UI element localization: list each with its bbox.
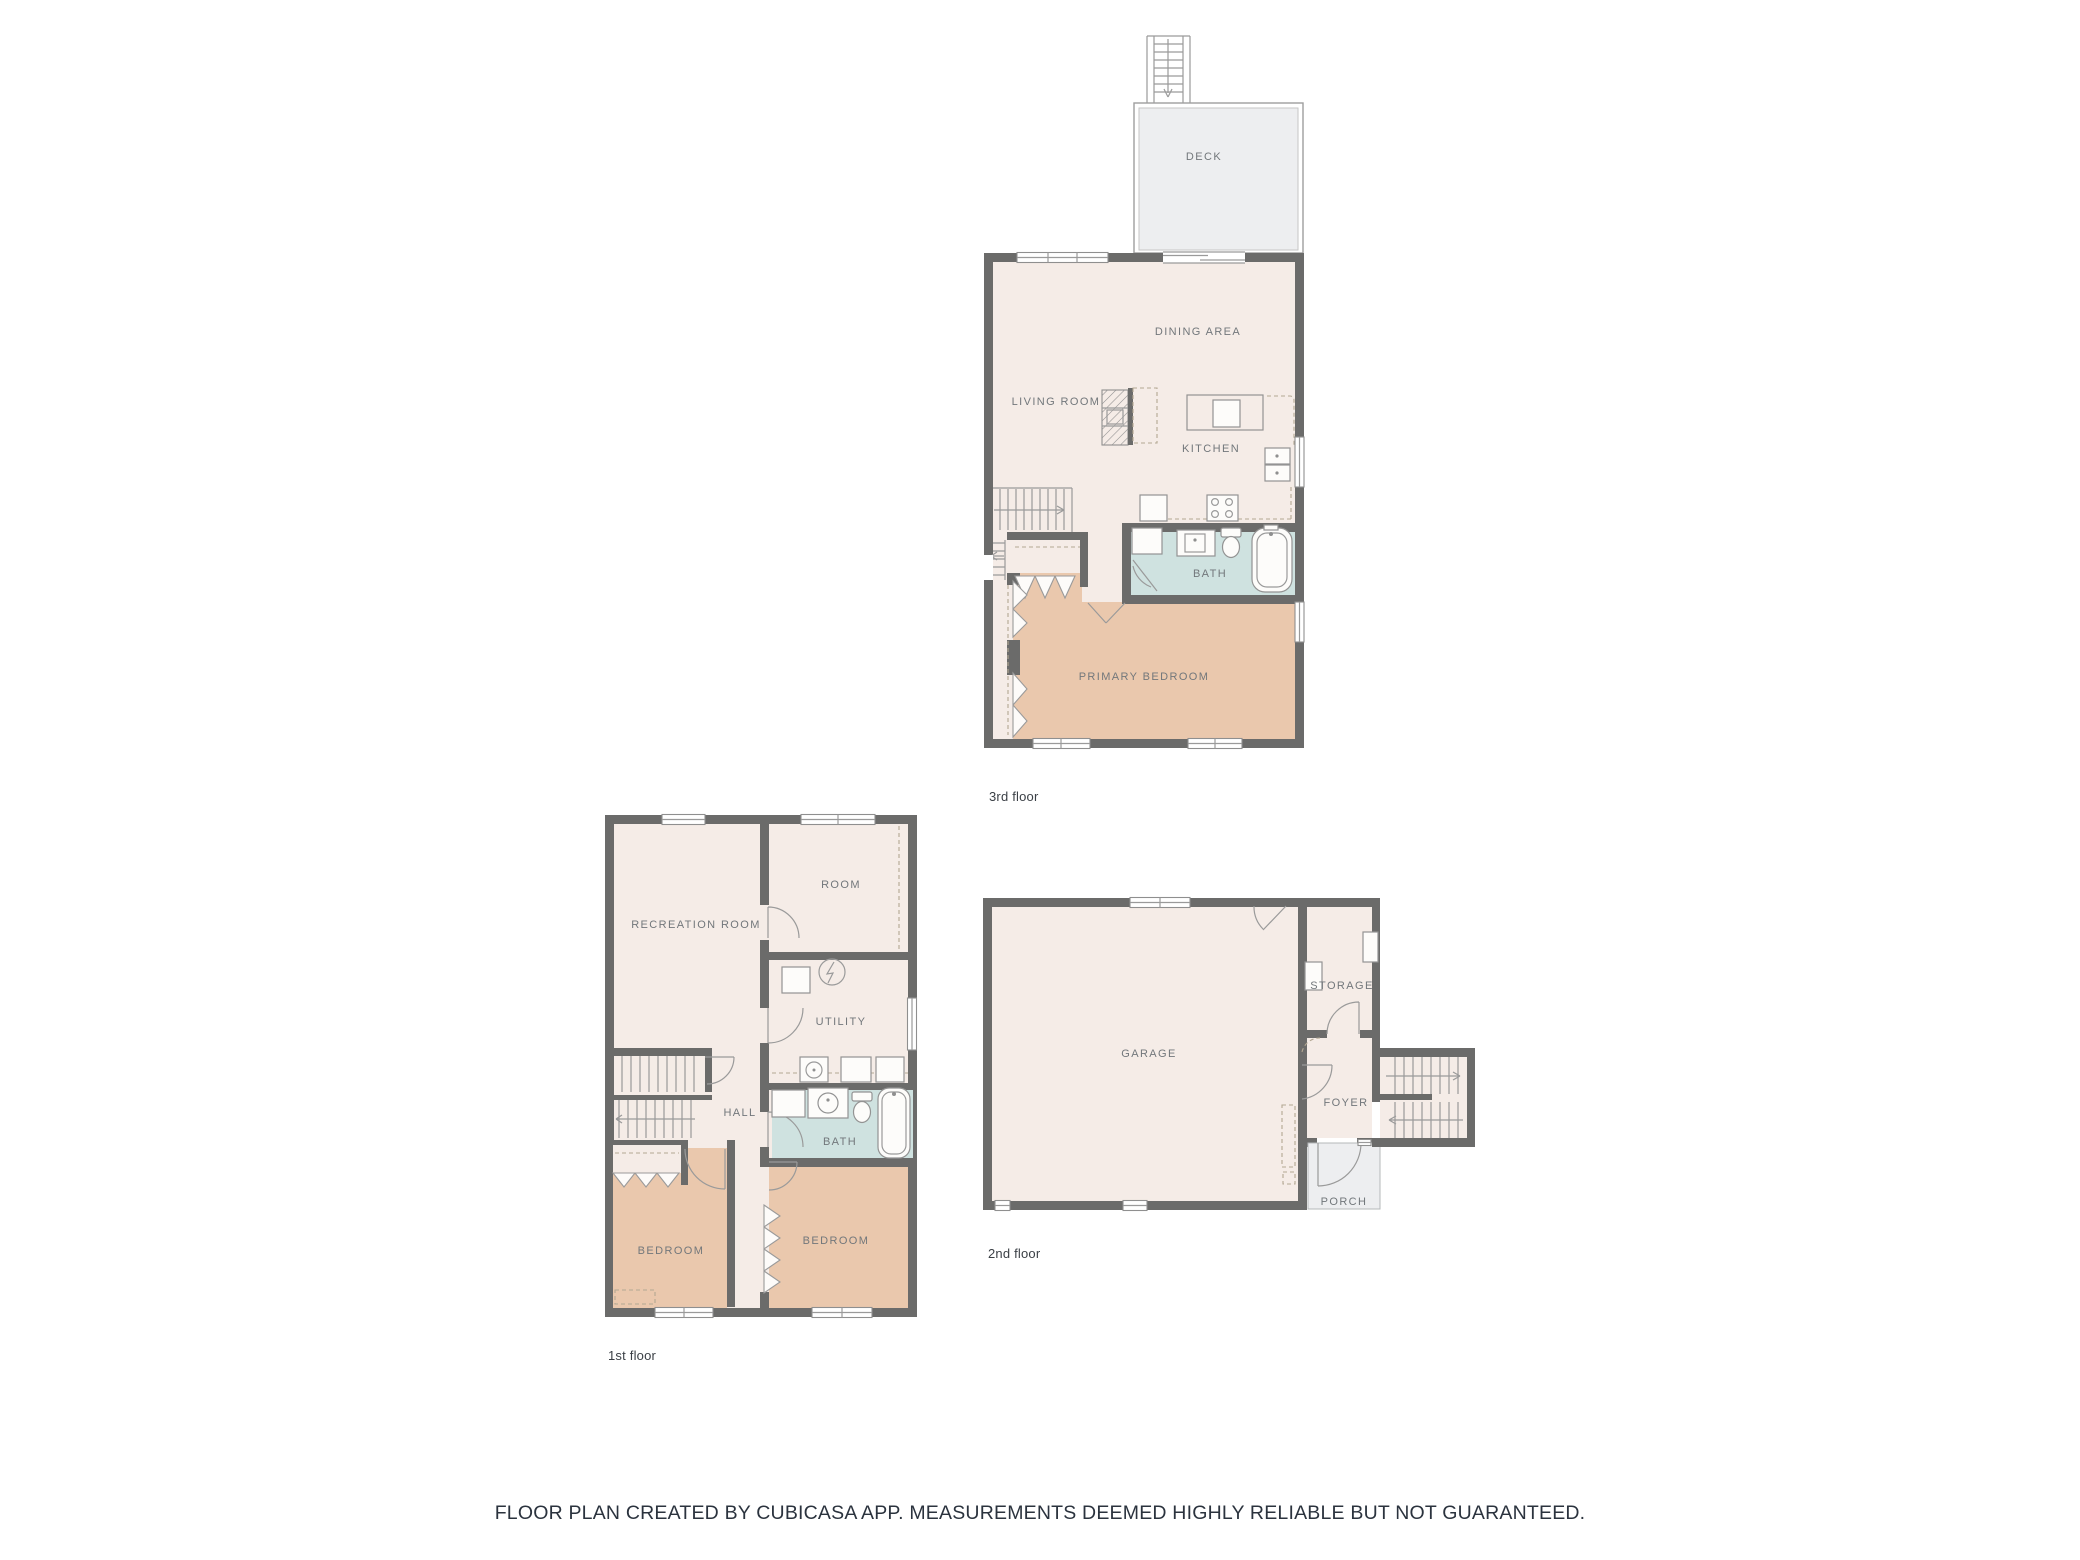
window-icon	[801, 815, 875, 825]
floorplan-3rd-floor: DECK	[980, 25, 1320, 765]
bath-closet	[772, 1090, 805, 1117]
room-label-primary-bedroom: PRIMARY BEDROOM	[1079, 671, 1210, 683]
sink-icon	[808, 1088, 848, 1118]
room-label-storage: STORAGE	[1310, 980, 1373, 992]
room-label-bedroom-right: BEDROOM	[803, 1235, 870, 1247]
window-icon	[1358, 1140, 1371, 1146]
window-icon	[655, 1308, 713, 1318]
floorplan-1st-floor: RECREATION ROOM ROOM UTILITY HALL BATH B…	[600, 810, 930, 1370]
exterior-wall	[1372, 898, 1380, 1102]
washer-icon	[800, 1057, 828, 1082]
stove-icon	[1207, 495, 1238, 521]
bathtub-icon	[1252, 525, 1292, 592]
window-icon	[1033, 739, 1090, 749]
stairs	[1372, 1048, 1475, 1147]
deck-stairs	[1147, 36, 1190, 103]
window-icon	[662, 815, 705, 825]
utility-cabinet	[782, 967, 810, 993]
sink-icon	[1177, 530, 1215, 556]
room-label-utility: UTILITY	[816, 1016, 867, 1028]
floor-plan-sheet: DECK	[0, 0, 2080, 1560]
kitchen-sink-icon	[1265, 448, 1290, 481]
dryer-icon	[841, 1057, 871, 1082]
bathtub-icon	[878, 1088, 910, 1158]
room-label-kitchen: KITCHEN	[1182, 443, 1240, 455]
fridge-icon	[1213, 400, 1240, 427]
storage-shelf-icon	[1363, 932, 1378, 962]
room-label-deck: DECK	[1186, 151, 1222, 163]
porch: PORCH	[1308, 1143, 1380, 1209]
appliance-icon	[876, 1057, 904, 1082]
floor-name-1st: 1st floor	[608, 1348, 656, 1363]
window-icon	[1017, 253, 1108, 263]
exterior-wall	[1302, 898, 1380, 907]
window-icon	[1295, 437, 1304, 487]
window-icon	[908, 998, 917, 1050]
cabinet-icon	[1140, 495, 1167, 521]
window-icon	[1123, 1201, 1147, 1211]
floor-name-2nd: 2nd floor	[988, 1246, 1040, 1261]
closet-left-bedroom	[613, 1145, 681, 1187]
room-label-dining-area: DINING AREA	[1155, 326, 1241, 338]
toilet-icon	[852, 1092, 872, 1123]
room-label-bedroom-left: BEDROOM	[638, 1245, 705, 1257]
window-icon	[1188, 739, 1242, 749]
room-label-bath: BATH	[1193, 568, 1227, 580]
room-label-foyer: FOYER	[1324, 1097, 1369, 1109]
stair-wall-opening	[984, 555, 993, 580]
room-label-bath: BATH	[823, 1136, 857, 1148]
room-label-room: ROOM	[821, 879, 861, 891]
window-icon	[995, 1201, 1010, 1211]
caption-text: FLOOR PLAN CREATED BY CUBICASA APP. MEAS…	[0, 1502, 2080, 1525]
room-label-living-room: LIVING ROOM	[1012, 396, 1101, 408]
window-icon	[812, 1308, 872, 1318]
room-label-garage: GARAGE	[1121, 1048, 1176, 1060]
window-icon	[1130, 898, 1190, 908]
bifold-door-icon	[613, 1173, 679, 1187]
window-icon	[1295, 602, 1304, 642]
toilet-icon	[1221, 528, 1241, 558]
sliding-door-icon	[1163, 252, 1245, 263]
floorplan-2nd-floor: PORCH	[980, 890, 1490, 1290]
deck: DECK	[1134, 103, 1303, 253]
room-label-porch: PORCH	[1321, 1196, 1368, 1208]
room-label-hall: HALL	[723, 1107, 756, 1119]
floor-name-3rd: 3rd floor	[989, 789, 1039, 804]
bath-closet	[1132, 528, 1162, 554]
room-label-recreation-room: RECREATION ROOM	[631, 919, 761, 931]
